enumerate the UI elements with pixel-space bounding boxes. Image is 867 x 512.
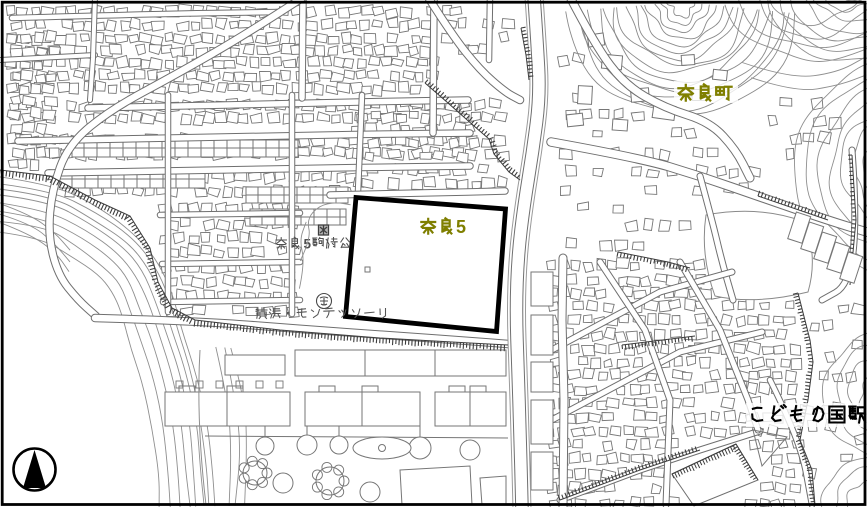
svg-text:5: 5 [456,217,466,237]
